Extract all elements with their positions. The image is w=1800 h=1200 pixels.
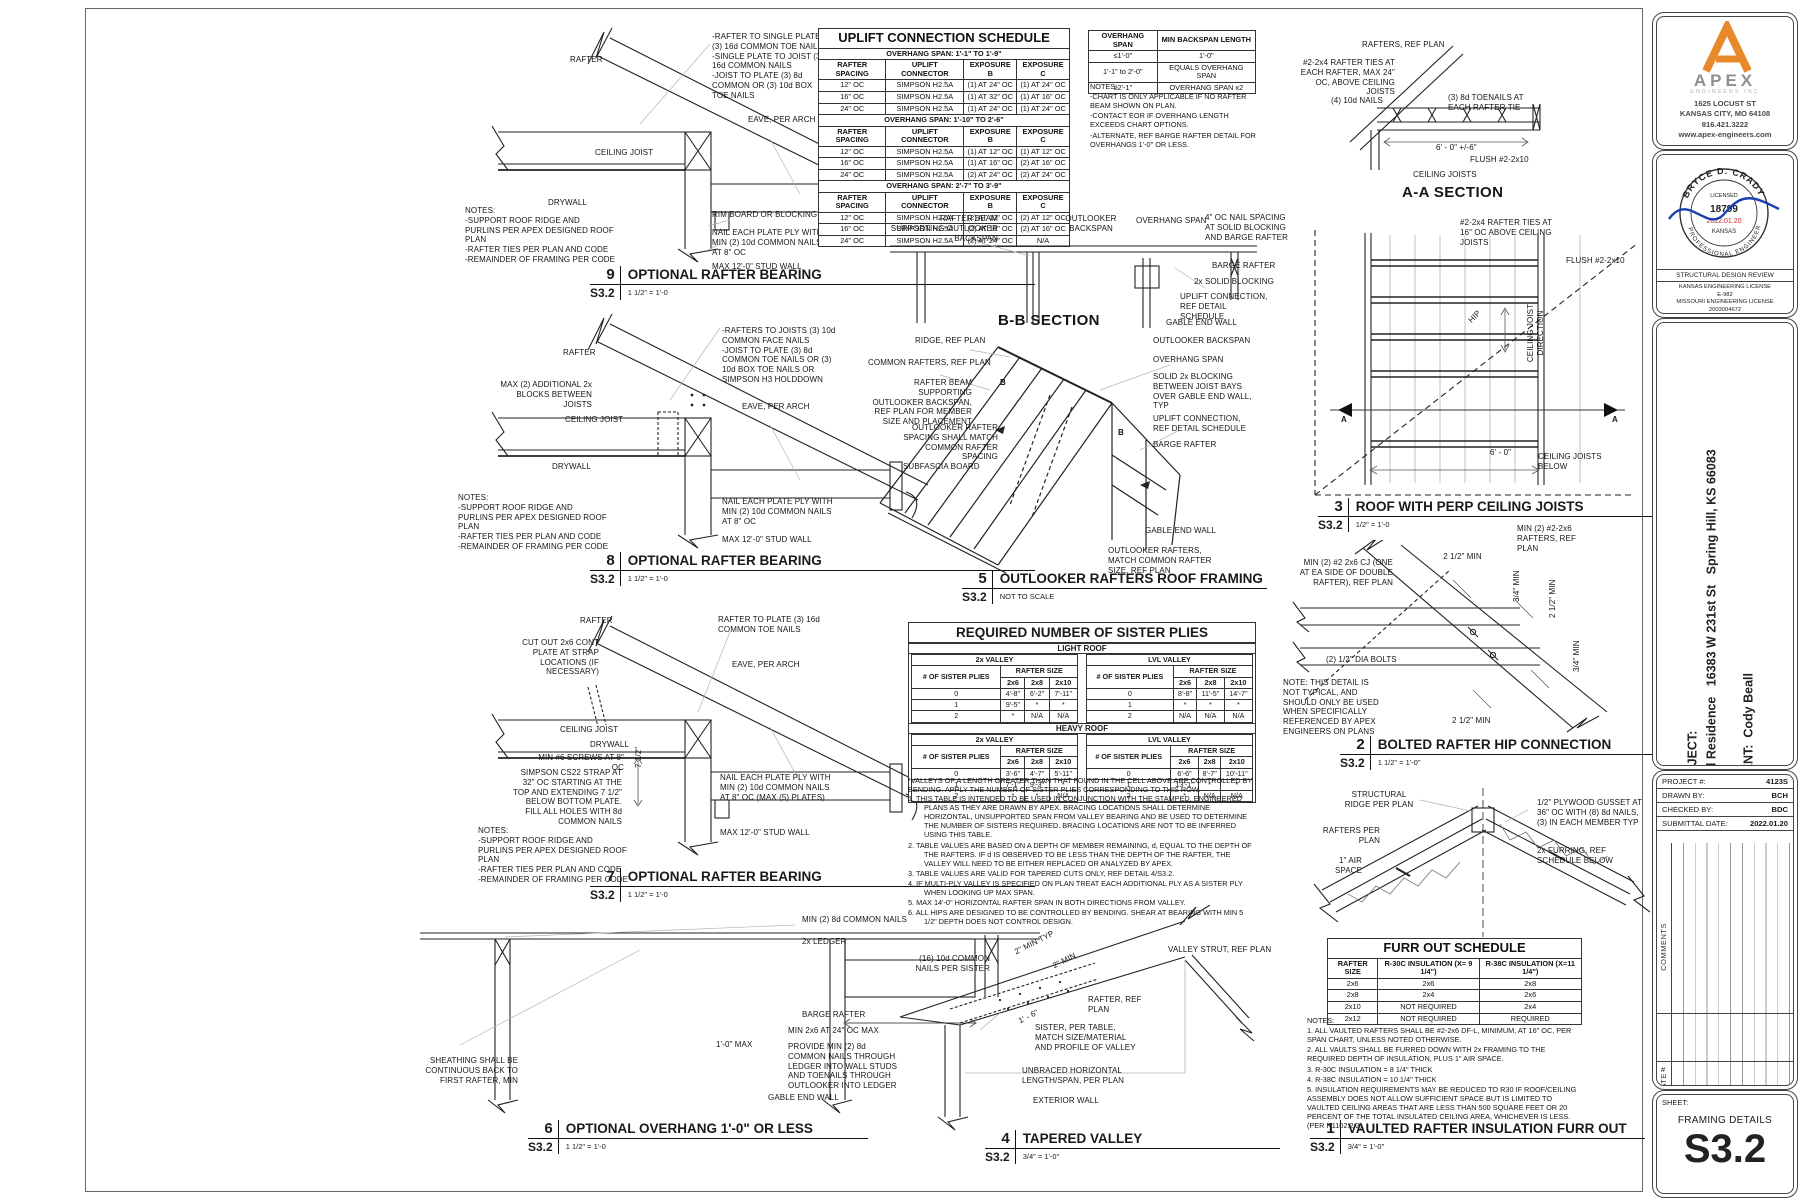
cell: 11'-5" [1197, 688, 1225, 699]
cell: UPLIFT CONNECTOR [886, 126, 964, 146]
annotation: MAX 12'-0" STUD WALL [722, 535, 842, 545]
engineer-seal: BRYCE D. CRADY PROFESSIONAL ENGINEER LIC… [1663, 157, 1785, 269]
dimension: 3/4" MIN [1512, 570, 1522, 602]
firm-phone: 816.421.3222 [1657, 120, 1793, 130]
note-line: -CHART IS ONLY APPLICABLE IF NO RAFTER B… [1090, 92, 1258, 110]
annotation: EXTERIOR WALL [1033, 1096, 1099, 1106]
annotation: RAFTERS, REF PLAN [1362, 40, 1445, 50]
detail-number: 5 [962, 570, 993, 589]
annotation: CEILING JOIST [595, 148, 653, 158]
backspan-notes: NOTES:-CHART IS ONLY APPLICABLE IF NO RA… [1090, 82, 1258, 150]
dimension: 3/4" MIN [1572, 640, 1582, 672]
dimension: 2 1/2" MIN [1452, 716, 1491, 726]
note-line: 1. ALL VAULTED RAFTERS SHALL BE #2-2x6 D… [1307, 1026, 1585, 1044]
checked-by-label: CHECKED BY: [1662, 805, 1713, 814]
checked-by-value: BDC [1772, 805, 1788, 814]
annotation: NAIL EACH PLATE PLY WITH MIN (2) 10d COM… [722, 497, 834, 526]
cell: N/A [1049, 711, 1077, 722]
cell: SIMPSON H2.5A [886, 158, 964, 170]
cell: 2x6 [1173, 677, 1196, 688]
cell: EXPOSURE B [964, 60, 1017, 80]
drawing-sheet: RAFTER -RAFTER TO SINGLE PLATE (3) 16d C… [0, 0, 1800, 1200]
section-header: OVERHANG SPAN: 2'-7" TO 3'-9" [819, 181, 1070, 193]
table-row: 16" OCSIMPSON H2.5A(1) AT 32" OC(1) AT 1… [819, 92, 1070, 104]
stamp-license1: KANSAS ENGINEERING LICENSE [1657, 284, 1793, 292]
note-line: *VALLEYS OF A LENGTH GREATER THAN THAT F… [908, 776, 1256, 794]
cell: 2x6 [1001, 757, 1025, 768]
drawn-by-value: BCH [1772, 791, 1788, 800]
firm-name: APEX [1657, 71, 1793, 91]
bb-section-title: B-B SECTION [998, 312, 1100, 330]
annotation: (3) 8d TOENAILS AT EACH RAFTER TIE [1448, 93, 1530, 113]
table-row: 1*** [1087, 700, 1253, 711]
cell: 2x10 [1221, 757, 1253, 768]
annotation: BARGE RAFTER [1212, 261, 1275, 271]
detail-6-title: 6 OPTIONAL OVERHANG 1'-0" OR LESS S3.2 1… [528, 1120, 868, 1154]
project-label: PROJECT: [1686, 731, 1700, 766]
dimension: 2 1/2" MIN [1548, 579, 1558, 618]
light-2x-valley: 2x VALLEY # OF SISTER PLIESRAFTER SIZE 2… [911, 654, 1078, 723]
cell: R-38C INSULATION (X=11 1/4") [1479, 958, 1582, 978]
detail-4-title: 4 TAPERED VALLEY S3.2 3/4" = 1'-0" [985, 1130, 1280, 1164]
annotation: SIMPSON CS22 STRAP AT 32" OC STARTING AT… [510, 768, 622, 827]
annotation: DRYWALL [552, 462, 591, 472]
cell: SIMPSON H2.5A [886, 92, 964, 104]
divider [1657, 1061, 1793, 1062]
col-header: RAFTER SIZE [1173, 666, 1252, 677]
titleblock-info: PROJECT #: 4123S DRAWN BY: BCH CHECKED B… [1652, 770, 1798, 1090]
furr-notes: NOTES:1. ALL VAULTED RAFTERS SHALL BE #2… [1307, 1016, 1585, 1131]
dimension: 6' - 0" +/-6" [1436, 143, 1477, 153]
cell: * [1224, 700, 1252, 711]
annotation: SISTER, PER TABLE, MATCH SIZE/MATERIAL A… [1035, 1023, 1137, 1052]
annotation: RIDGE, REF PLAN [915, 336, 985, 346]
detail-title: TAPERED VALLEY [1016, 1132, 1280, 1149]
table-row: 2*N/AN/A [912, 711, 1078, 722]
detail-title: OPTIONAL OVERHANG 1'-0" OR LESS [559, 1122, 868, 1139]
cell: 12" OC [819, 80, 886, 92]
cell: 1 [1087, 700, 1174, 711]
cell: (1) AT 12" OC [1017, 146, 1070, 158]
note-line: 2. TABLE VALUES ARE BASED ON A DEPTH OF … [908, 841, 1256, 868]
note-line: NOTES: [1307, 1016, 1585, 1025]
detail-scale: 1/2" = 1'-0 [1349, 517, 1653, 532]
cell: 2x8 [1025, 757, 1049, 768]
detail-title: BOLTED RAFTER HIP CONNECTION [1371, 738, 1655, 755]
cell: OVERHANG SPAN [1089, 31, 1158, 51]
cell: 2x6 [1328, 978, 1378, 990]
cell: N/A [1224, 711, 1252, 722]
table-title: UPLIFT CONNECTION SCHEDULE [819, 29, 1070, 49]
cell: 6'-2" [1025, 688, 1049, 699]
annotation: EAVE, PER ARCH [742, 402, 810, 412]
cell: 24" OC [819, 169, 886, 181]
section-marker-b: B [1000, 378, 1006, 388]
cell: N/A [1197, 711, 1225, 722]
cell: (2) AT 24" OC [964, 169, 1017, 181]
table-row: 12" OCSIMPSON H2.5A(1) AT 24" OC(1) AT 2… [819, 80, 1070, 92]
detail-title: ROOF WITH PERP CEILING JOISTS [1349, 500, 1653, 517]
detail-sheet-ref: S3.2 [1310, 1139, 1341, 1154]
detail-1-title: 1 VAULTED RAFTER INSULATION FURR OUT S3.… [1310, 1120, 1645, 1154]
annotation: CEILING JOIST DIRECTION [1526, 298, 1546, 368]
date-label: DATE [1659, 1073, 1668, 1086]
client-label: CLIENT: [1742, 745, 1756, 766]
cell: * [1025, 700, 1049, 711]
annotation: UPLIFT CONNECTION, REF DETAIL SCHEDULE [1153, 414, 1258, 434]
project-name: Beall Residence [1704, 697, 1718, 766]
annotation: MAX 12'-0" STUD WALL [720, 828, 840, 838]
table-row: 04'-8"6'-2"7'-11" [912, 688, 1078, 699]
section-marker-a: A [1612, 415, 1618, 425]
dimension: 1'-0" MAX [716, 1040, 752, 1050]
annotation: 1" AIR SPACE [1318, 856, 1362, 876]
cell: 2x6 [1171, 757, 1198, 768]
detail-number: 7 [590, 868, 621, 887]
cell: 2x8 [1198, 757, 1221, 768]
col-header: RAFTER SIZE [1171, 745, 1253, 756]
light-roof-tables: 2x VALLEY # OF SISTER PLIESRAFTER SIZE 2… [909, 654, 1255, 723]
note-line: NOTES: [1090, 82, 1258, 91]
table-row: 24" OCSIMPSON H2.5A(2) AT 24" OC(2) AT 2… [819, 169, 1070, 181]
project-number-value: 4123S [1766, 777, 1788, 786]
table-row: 2x82x42x6 [1328, 990, 1582, 1002]
drawn-by-row: DRAWN BY: BCH [1657, 789, 1793, 803]
annotation: GABLE END WALL [1145, 526, 1216, 536]
annotation: RAFTER BEAM SUPPORTING OUTLOOKER BACKSPA… [890, 214, 998, 243]
detail-3-title: 3 ROOF WITH PERP CEILING JOISTS S3.2 1/2… [1318, 498, 1653, 532]
note-line: 3. R-30C INSULATION = 8 1/4" THICK [1307, 1065, 1585, 1074]
cell: EQUALS OVERHANG SPAN [1157, 62, 1255, 82]
cell: 12" OC [819, 146, 886, 158]
annotation: RAFTER BEAM SUPPORTING OUTLOOKER BACKSPA… [870, 378, 972, 427]
note-line: 2. ALL VAULTS SHALL BE FURRED DOWN WITH … [1307, 1045, 1585, 1063]
detail-2-title: 2 BOLTED RAFTER HIP CONNECTION S3.2 1 1/… [1340, 736, 1655, 770]
cell: * [1197, 700, 1225, 711]
cell: RAFTER SPACING [819, 60, 886, 80]
detail-sheet-ref: S3.2 [1340, 755, 1371, 770]
cell: 2x8 [1025, 677, 1049, 688]
annotation: -RAFTER TO SINGLE PLATE (3) 16d COMMON T… [712, 32, 828, 100]
divider [1657, 1013, 1793, 1014]
comments-label: COMMENTS [1659, 923, 1668, 971]
annotation: CEILING JOISTS BELOW [1538, 452, 1608, 472]
section-header: LIGHT ROOF [909, 643, 1255, 654]
detail-number: 4 [985, 1130, 1016, 1149]
detail-number: 1 [1310, 1120, 1341, 1139]
table-row: 08'-8"11'-5"14'-7" [1087, 688, 1253, 699]
detail-5-title: 5 OUTLOOKER RAFTERS ROOF FRAMING S3.2 NO… [962, 570, 1267, 604]
header-row: RAFTER SPACINGUPLIFT CONNECTOREXPOSURE B… [819, 60, 1070, 80]
section-header: HEAVY ROOF [909, 723, 1255, 734]
cell: 4'-8" [1001, 688, 1025, 699]
project-address2: Spring Hill, KS 66083 [1704, 449, 1718, 574]
cell: 2 [912, 711, 1001, 722]
annotation: GABLE END WALL [768, 1093, 839, 1103]
annotation: SUBFASCIA BOARD [903, 462, 980, 472]
cell: (1) AT 24" OC [1017, 103, 1070, 115]
stamp-licensed: LICENSED [1710, 193, 1738, 199]
cell: UPLIFT CONNECTOR [886, 60, 964, 80]
annotation: UNBRACED HORIZONTAL LENGTH/SPAN, PER PLA… [1022, 1066, 1137, 1086]
cell: (1) AT 16" OC [964, 158, 1017, 170]
valley-label: LVL VALLEY [1087, 734, 1253, 745]
cell: 1'-0" [1157, 51, 1255, 63]
annotation: BARGE RAFTER [802, 1010, 865, 1020]
cell: (2) AT 16" OC [1017, 158, 1070, 170]
section-header: OVERHANG SPAN: 1'-10" TO 2'-6" [819, 115, 1070, 127]
annotation: FLUSH #2-2x10 [1470, 155, 1529, 165]
cell: EXPOSURE C [1017, 126, 1070, 146]
note-line: -CONTACT EOR IF OVERHANG LENGTH EXCEEDS … [1090, 111, 1258, 129]
col-header: # OF SISTER PLIES [1087, 666, 1174, 689]
cell: (1) AT 24" OC [964, 103, 1017, 115]
annotation: DRYWALL [590, 740, 629, 750]
project-info-block: PROJECT: Beall Residence 16383 W 231st S… [1652, 318, 1798, 770]
annotation: NAIL EACH PLATE PLY WITH MIN (2) 10d COM… [720, 773, 832, 802]
annotation: OUTLOOKER BACKSPAN [1052, 214, 1130, 234]
cell: (1) AT 24" OC [1017, 80, 1070, 92]
cell: 2 [1087, 711, 1174, 722]
col-header: # OF SISTER PLIES [1087, 745, 1171, 768]
table-row: 19'-5"** [912, 700, 1078, 711]
header-row: RAFTER SIZER-30C INSULATION (X= 9 1/4")R… [1328, 958, 1582, 978]
valley-label: 2x VALLEY [912, 655, 1078, 666]
annotation: 2x SOLID BLOCKING [1194, 277, 1274, 287]
project-address1: 16383 W 231st St [1704, 585, 1718, 686]
cell: 0 [1087, 688, 1174, 699]
cell: (1) AT 24" OC [964, 80, 1017, 92]
engineer-stamp-block: BRYCE D. CRADY PROFESSIONAL ENGINEER LIC… [1652, 150, 1798, 318]
annotation: MAX (2) ADDITIONAL 2x BLOCKS BETWEEN JOI… [494, 380, 592, 409]
firm-address2: KANSAS CITY, MO 64108 [1657, 109, 1793, 119]
annotation: #2-2x4 RAFTER TIES AT 16" OC ABOVE CEILI… [1460, 218, 1565, 247]
note-line: -ALTERNATE, REF BARGE RAFTER DETAIL FOR … [1090, 131, 1258, 149]
cell: N/A [1025, 711, 1049, 722]
cell: 2x4 [1479, 1002, 1582, 1014]
annotation: MIN (2) #2-2x6 RAFTERS, REF PLAN [1517, 524, 1599, 553]
detail-title: OUTLOOKER RAFTERS ROOF FRAMING [993, 572, 1267, 589]
annotation: OVERHANG SPAN [1136, 216, 1207, 226]
sister-footnote: *VALLEYS OF A LENGTH GREATER THAN THAT F… [908, 776, 1256, 795]
project-number-row: PROJECT #: 4123S [1657, 775, 1793, 789]
cell: 2x8 [1197, 677, 1225, 688]
cell: 16" OC [819, 92, 886, 104]
apex-logo-icon [1692, 21, 1762, 73]
cell: ≤1'-0" [1089, 51, 1158, 63]
detail-notes: NOTES: -SUPPORT ROOF RIDGE AND PURLINS P… [458, 493, 610, 552]
sheet-label: SHEET: [1662, 1098, 1688, 1107]
cell: 2x6 [1378, 978, 1479, 990]
cell: R-30C INSULATION (X= 9 1/4") [1378, 958, 1479, 978]
cell: 14'-7" [1224, 688, 1252, 699]
annotation: COMMON RAFTERS, REF PLAN [868, 358, 991, 368]
detail-number: 9 [590, 266, 621, 285]
annotation: RAFTER [570, 55, 603, 65]
note-line: 3. TABLE VALUES ARE VALID FOR TAPERED CU… [908, 869, 1256, 878]
annotation: #2-2x4 RAFTER TIES AT EACH RAFTER, MAX 2… [1293, 58, 1395, 97]
annotation: UPLIFT CONNECTION, REF DETAIL SCHEDULE [1180, 292, 1272, 321]
project-number-label: PROJECT #: [1662, 777, 1706, 786]
annotation: SOLID 2x BLOCKING BETWEEN JOIST BAYS OVE… [1153, 372, 1265, 411]
cell: 2x8 [1328, 990, 1378, 1002]
detail-number: 6 [528, 1120, 559, 1139]
table-row: 12" OCSIMPSON H2.5A(1) AT 12" OC(1) AT 1… [819, 146, 1070, 158]
cell: SIMPSON H2.5A [886, 103, 964, 115]
cell: 2x10 [1224, 677, 1252, 688]
submittal-date-row: SUBMITTAL DATE: 2022.01.20 [1657, 817, 1793, 831]
section-header: OVERHANG SPAN: 1'-1" TO 1'-9" [819, 48, 1070, 60]
revision-grid: COMMENTS DATE # [1657, 843, 1793, 1085]
stamp-license2: MISSOURI ENGINEERING LICENSE [1657, 299, 1793, 307]
detail-scale: 1 1/2" = 1'-0" [1371, 755, 1655, 770]
cell: 8'-8" [1173, 688, 1196, 699]
cell: 9'-5" [1001, 700, 1025, 711]
detail-scale: NOT TO SCALE [993, 589, 1267, 604]
col-header: RAFTER SIZE [1001, 745, 1078, 756]
annotation: 4" OC NAIL SPACING AT SOLID BLOCKING AND… [1205, 213, 1297, 242]
annotation: RAFTERS PER PLAN [1322, 826, 1380, 846]
annotation: 2x FURRING, REF SCHEDULE BELOW [1537, 846, 1632, 866]
cell: (1) AT 12" OC [964, 146, 1017, 158]
header-row: OVERHANG SPANMIN BACKSPAN LENGTH [1089, 31, 1256, 51]
section-marker-a: A [1341, 415, 1347, 425]
annotation: (16) 10d COMMON NAILS PER SISTER [906, 954, 990, 974]
valley-label: LVL VALLEY [1087, 655, 1253, 666]
dimension: 7 1/2" [634, 747, 644, 768]
table-row: 1'-1" to 2'-0"EQUALS OVERHANG SPAN [1089, 62, 1256, 82]
cell: * [1049, 700, 1077, 711]
submittal-date-value: 2022.01.20 [1750, 819, 1788, 828]
cell: 2x6 [1001, 677, 1025, 688]
cell: MIN BACKSPAN LENGTH [1157, 31, 1255, 51]
firm-logo-block: APEX ENGINEERS INC 1625 LOCUST ST KANSAS… [1652, 12, 1798, 150]
table-row: ≤1'-0"1'-0" [1089, 51, 1256, 63]
detail-sheet-ref: S3.2 [590, 285, 621, 300]
stamp-license1b: E-982 [1657, 292, 1793, 300]
drawn-by-label: DRAWN BY: [1662, 791, 1704, 800]
firm-website: www.apex-engineers.com [1657, 130, 1793, 140]
stamp-state: KANSAS [1712, 229, 1736, 235]
sheet-title: FRAMING DETAILS [1657, 1115, 1793, 1126]
cell: SIMPSON H2.5A [886, 169, 964, 181]
submittal-date-label: SUBMITTAL DATE: [1662, 819, 1728, 828]
cell: * [1173, 700, 1196, 711]
detail-number: 2 [1340, 736, 1371, 755]
cell: 2x8 [1479, 978, 1582, 990]
annotation: CUT OUT 2x6 CONT PLATE AT STRAP LOCATION… [505, 638, 599, 677]
cell: (1) AT 16" OC [1017, 92, 1070, 104]
cell: SIMPSON H2.5A [886, 80, 964, 92]
cell: 2x10 [1049, 757, 1077, 768]
table-row: 2N/AN/AN/A [1087, 711, 1253, 722]
cell: (1) AT 32" OC [964, 92, 1017, 104]
num-label: # [1661, 1065, 1665, 1074]
detail-sheet-ref: S3.2 [985, 1149, 1016, 1164]
annotation: GABLE END WALL [1166, 318, 1237, 328]
sheet-number: S3.2 [1657, 1127, 1793, 1172]
annotation: CEILING JOISTS [1413, 170, 1477, 180]
detail-sheet-ref: S3.2 [590, 571, 621, 586]
annotation: MIN (2) #2 2x6 CJ (ONE AT EA SIDE OF DOU… [1298, 558, 1393, 587]
detail-title: VAULTED RAFTER INSULATION FURR OUT [1341, 1122, 1645, 1139]
furr-out-schedule: FURR OUT SCHEDULE RAFTER SIZER-30C INSUL… [1327, 938, 1582, 1025]
cell: 2x10 [1049, 677, 1077, 688]
cell: 12" OC [819, 212, 886, 224]
cell: 7'-11" [1049, 688, 1077, 699]
annotation: EAVE, PER ARCH [732, 660, 800, 670]
aa-section-title: A-A SECTION [1402, 184, 1503, 202]
annotation: RAFTER [563, 348, 596, 358]
cell: RAFTER SIZE [1328, 958, 1378, 978]
annotation: RAFTER [580, 616, 613, 626]
cell: * [1001, 711, 1025, 722]
cell: 2x6 [1479, 990, 1582, 1002]
detail-scale: 1 1/2" = 1'-0 [559, 1139, 868, 1154]
cell: EXPOSURE C [1017, 192, 1070, 212]
cell: 1'-1" to 2'-0" [1089, 62, 1158, 82]
annotation: VALLEY STRUT, REF PLAN [1168, 945, 1271, 955]
detail-number: 8 [590, 552, 621, 571]
note-line: 4. IF MULTI-PLY VALLEY IS SPECIFIED ON P… [908, 879, 1256, 897]
annotation: EAVE, PER ARCH [748, 115, 816, 125]
annotation: -RAFTERS TO JOISTS (3) 10d COMMON FACE N… [722, 326, 840, 385]
table-title: FURR OUT SCHEDULE [1328, 939, 1582, 959]
cell: 2x10 [1328, 1002, 1378, 1014]
annotation: OVERHANG SPAN [1153, 355, 1224, 365]
cell: EXPOSURE B [964, 126, 1017, 146]
annotation: CEILING JOIST [560, 725, 618, 735]
table-row: 24" OCSIMPSON H2.5A(1) AT 24" OC(1) AT 2… [819, 103, 1070, 115]
detail-notes: NOTES: -SUPPORT ROOF RIDGE AND PURLINS P… [465, 206, 617, 265]
cell: 1 [912, 700, 1001, 711]
annotation: STRUCTURAL RIDGE PER PLAN [1340, 790, 1418, 810]
revision-columns [1671, 843, 1793, 1085]
section-marker-b: B [1118, 428, 1124, 438]
detail-number: 3 [1318, 498, 1349, 517]
detail-sheet-ref: S3.2 [1318, 517, 1349, 532]
detail-sheet-ref: S3.2 [962, 589, 993, 604]
detail-sheet-ref: S3.2 [590, 887, 621, 902]
cell: 24" OC [819, 103, 886, 115]
table-title: REQUIRED NUMBER OF SISTER PLIES [909, 623, 1255, 643]
table-row: 2x62x62x8 [1328, 978, 1582, 990]
cell: RAFTER SPACING [819, 126, 886, 146]
annotation: RAFTER, REF PLAN [1088, 995, 1150, 1015]
checked-by-row: CHECKED BY: BDC [1657, 803, 1793, 817]
annotation: RAFTER TO PLATE (3) 16d COMMON TOE NAILS [718, 615, 826, 635]
annotation: 2x LEDGER [802, 937, 846, 947]
table-row: 2x10NOT REQUIRED2x4 [1328, 1002, 1582, 1014]
annotation: CEILING JOIST [565, 415, 623, 425]
detail-sheet-ref: S3.2 [528, 1139, 559, 1154]
table-row: 16" OCSIMPSON H2.5A(1) AT 16" OC(2) AT 1… [819, 158, 1070, 170]
col-header: RAFTER SIZE [1001, 666, 1078, 677]
client-name: Cody Beall [1742, 673, 1756, 738]
header-row: RAFTER SPACINGUPLIFT CONNECTOREXPOSURE B… [819, 192, 1070, 212]
sheet-id-block: SHEET: FRAMING DETAILS S3.2 [1652, 1090, 1798, 1198]
annotation: (4) 10d NAILS [1331, 96, 1383, 106]
annotation: FLUSH #2-2x10 [1566, 256, 1625, 266]
col-header: # OF SISTER PLIES [912, 666, 1001, 689]
cell: EXPOSURE C [1017, 60, 1070, 80]
dimension: 2 1/2" MIN [1440, 552, 1485, 562]
annotation: 1/2" PLYWOOD GUSSET AT 36" OC WITH (8) 8… [1537, 798, 1645, 827]
cell: 0 [912, 688, 1001, 699]
detail-note: NOTE: THIS DETAIL IS NOT TYPICAL, AND SH… [1283, 678, 1385, 737]
cell: NOT REQUIRED [1378, 1002, 1479, 1014]
firm-tagline: ENGINEERS INC [1657, 89, 1793, 95]
